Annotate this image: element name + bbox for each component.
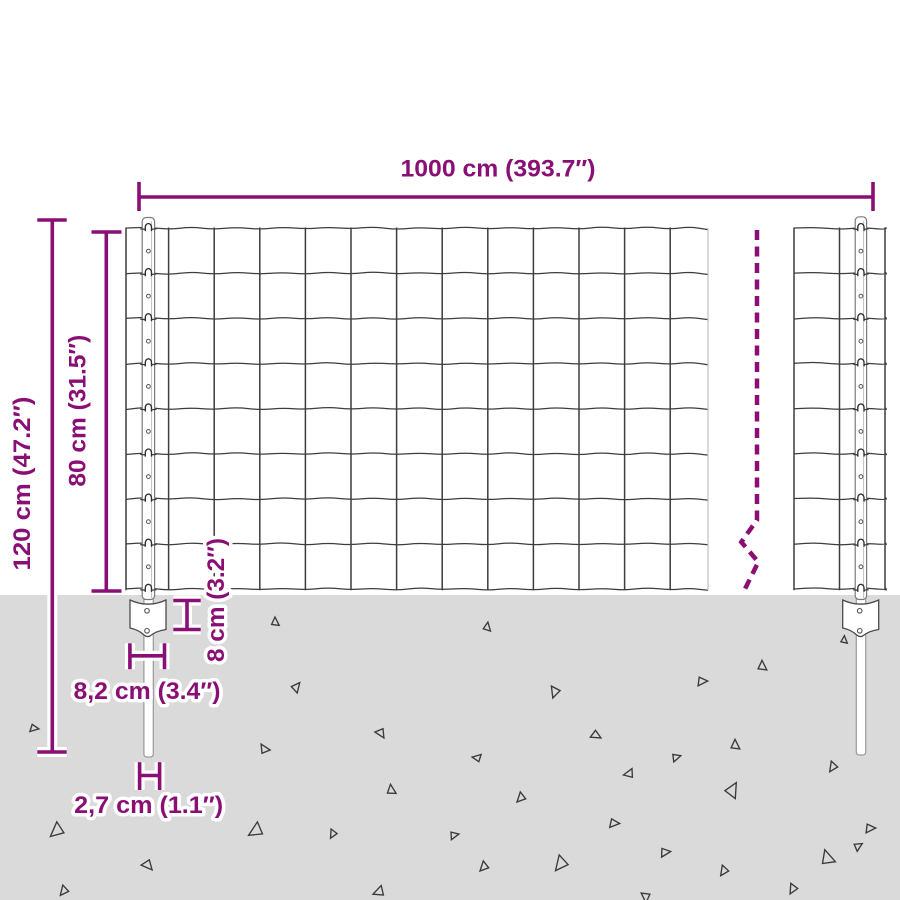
- svg-text:120 cm (47.2″): 120 cm (47.2″): [9, 397, 36, 571]
- svg-text:80 cm (31.5″): 80 cm (31.5″): [65, 335, 92, 487]
- svg-text:8,2 cm (3.4″): 8,2 cm (3.4″): [74, 678, 221, 705]
- svg-text:2,7 cm (1.1″): 2,7 cm (1.1″): [74, 792, 223, 819]
- svg-text:1000 cm (393.7″): 1000 cm (393.7″): [401, 156, 596, 183]
- svg-text:8 cm (3.2″): 8 cm (3.2″): [203, 538, 230, 662]
